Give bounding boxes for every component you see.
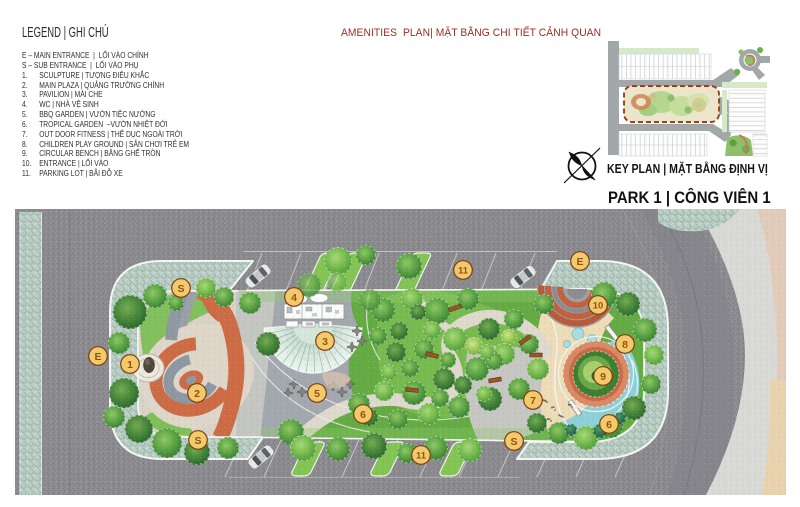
svg-text:11: 11	[416, 450, 427, 461]
svg-text:6: 6	[360, 409, 366, 421]
svg-text:2: 2	[194, 388, 200, 400]
svg-text:4: 4	[291, 292, 297, 304]
svg-text:5: 5	[314, 388, 320, 400]
svg-text:S: S	[194, 435, 201, 447]
svg-text:8: 8	[622, 339, 628, 351]
svg-text:E: E	[576, 256, 583, 268]
svg-text:1: 1	[127, 359, 133, 371]
svg-text:S: S	[510, 436, 517, 448]
svg-text:10: 10	[593, 300, 604, 311]
svg-text:7: 7	[530, 395, 536, 407]
svg-text:11: 11	[458, 265, 469, 276]
svg-text:E: E	[94, 351, 101, 363]
svg-text:S: S	[177, 283, 184, 295]
svg-text:6: 6	[606, 419, 612, 431]
svg-text:3: 3	[322, 336, 328, 348]
svg-text:9: 9	[600, 371, 606, 383]
